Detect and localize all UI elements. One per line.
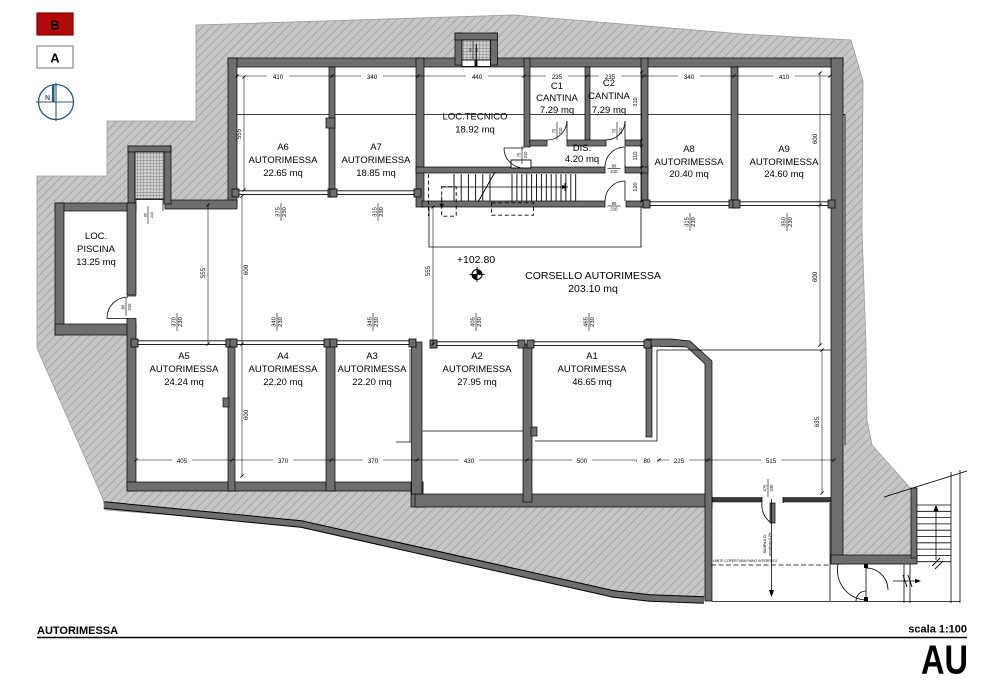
svg-text:465: 465: [583, 317, 589, 327]
svg-text:A8: A8: [683, 144, 695, 155]
svg-text:440: 440: [472, 74, 483, 81]
svg-text:+102.80: +102.80: [457, 254, 495, 266]
svg-text:22.20 mq: 22.20 mq: [263, 377, 303, 388]
svg-text:18.92 mq: 18.92 mq: [455, 125, 495, 136]
svg-text:410: 410: [273, 74, 284, 81]
svg-text:A6: A6: [277, 142, 289, 153]
svg-text:230: 230: [178, 317, 184, 327]
svg-text:310: 310: [633, 97, 639, 106]
svg-text:375: 375: [275, 207, 281, 217]
svg-text:18.85 mq: 18.85 mq: [356, 168, 396, 179]
svg-text:AUTORIMESSA: AUTORIMESSA: [249, 364, 319, 375]
svg-text:C1: C1: [551, 81, 563, 92]
svg-text:80: 80: [120, 304, 125, 309]
svg-text:46.65 mq: 46.65 mq: [572, 377, 612, 388]
svg-text:CANTINA: CANTINA: [588, 91, 630, 102]
svg-text:AUTORIMESSA: AUTORIMESSA: [37, 625, 118, 637]
svg-text:pendenza 8.2%: pendenza 8.2%: [768, 532, 772, 556]
svg-text:80: 80: [143, 213, 147, 217]
svg-text:370: 370: [278, 458, 289, 465]
svg-text:90: 90: [612, 201, 617, 206]
svg-text:210: 210: [618, 127, 623, 135]
svg-text:430: 430: [464, 458, 475, 465]
svg-text:230: 230: [477, 317, 483, 327]
svg-text:230: 230: [788, 217, 794, 227]
svg-text:600: 600: [812, 271, 819, 282]
svg-text:AUTORIMESSA: AUTORIMESSA: [338, 364, 408, 375]
svg-text:600: 600: [812, 133, 819, 144]
svg-text:4.20 mq: 4.20 mq: [565, 154, 599, 165]
svg-text:120: 120: [633, 182, 639, 191]
svg-text:24.24 mq: 24.24 mq: [164, 377, 204, 388]
svg-text:CANTINA: CANTINA: [536, 93, 578, 104]
svg-text:PISCINA: PISCINA: [77, 244, 116, 255]
svg-text:AUTORIMESSA: AUTORIMESSA: [342, 155, 412, 166]
svg-text:370: 370: [368, 458, 379, 465]
svg-text:A3: A3: [366, 351, 378, 362]
svg-text:500: 500: [577, 458, 588, 465]
svg-text:210: 210: [611, 207, 619, 212]
svg-text:24.60 mq: 24.60 mq: [764, 169, 804, 180]
svg-text:315: 315: [372, 207, 378, 217]
svg-text:7.29 mq: 7.29 mq: [540, 105, 574, 116]
svg-text:7.29 mq: 7.29 mq: [592, 105, 626, 116]
svg-text:B: B: [50, 18, 59, 33]
svg-text:75: 75: [551, 128, 556, 133]
svg-text:405: 405: [177, 458, 188, 465]
svg-text:210: 210: [127, 303, 132, 311]
svg-text:AUTORIMESSA: AUTORIMESSA: [655, 157, 725, 168]
svg-text:50: 50: [475, 48, 479, 52]
svg-text:A: A: [50, 51, 60, 66]
svg-text:75: 75: [516, 152, 521, 157]
svg-text:13.25 mq: 13.25 mq: [76, 257, 116, 268]
svg-text:555: 555: [425, 265, 432, 276]
svg-text:230: 230: [374, 317, 380, 327]
svg-text:27.95 mq: 27.95 mq: [457, 377, 497, 388]
svg-text:C2: C2: [603, 78, 615, 89]
svg-text:AU: AU: [921, 637, 968, 683]
svg-text:AUTORIMESSA: AUTORIMESSA: [150, 364, 220, 375]
svg-text:A2: A2: [471, 351, 483, 362]
svg-text:210: 210: [523, 151, 528, 159]
svg-text:635: 635: [814, 416, 821, 427]
svg-text:240: 240: [150, 212, 154, 218]
svg-text:230: 230: [379, 207, 385, 217]
svg-text:A9: A9: [778, 144, 790, 155]
svg-text:110: 110: [633, 152, 639, 161]
svg-text:315: 315: [684, 217, 690, 227]
svg-text:230: 230: [769, 484, 774, 492]
svg-text:230: 230: [278, 317, 284, 327]
svg-text:AUTORIMESSA: AUTORIMESSA: [443, 364, 513, 375]
svg-text:555: 555: [200, 267, 207, 278]
svg-text:230: 230: [691, 217, 697, 227]
svg-text:90: 90: [612, 163, 617, 168]
svg-text:600: 600: [243, 409, 250, 420]
svg-text:CORSELLO AUTORIMESSA: CORSELLO AUTORIMESSA: [525, 270, 661, 282]
svg-text:340: 340: [684, 74, 695, 81]
svg-text:A1: A1: [586, 351, 598, 362]
svg-text:LOC.: LOC.: [85, 231, 107, 242]
svg-text:AUTORIMESSA: AUTORIMESSA: [249, 155, 319, 166]
svg-text:210: 210: [611, 169, 619, 174]
svg-text:AUTORIMESSA: AUTORIMESSA: [558, 364, 628, 375]
svg-text:RAMPA 8 DI: RAMPA 8 DI: [763, 535, 767, 554]
svg-text:75: 75: [611, 128, 616, 133]
svg-text:600: 600: [243, 264, 250, 275]
svg-text:LIMITE COPERTURA PIANO INTERRA: LIMITE COPERTURA PIANO INTERRATO: [713, 559, 778, 563]
svg-text:515: 515: [766, 458, 777, 465]
svg-text:AUTORIMESSA: AUTORIMESSA: [750, 157, 820, 168]
svg-text:345: 345: [367, 317, 373, 327]
svg-text:405: 405: [470, 317, 476, 327]
svg-text:555: 555: [236, 128, 243, 139]
svg-text:230: 230: [282, 207, 288, 217]
svg-text:410: 410: [779, 74, 790, 81]
svg-text:50: 50: [468, 48, 472, 52]
svg-text:A7: A7: [370, 142, 382, 153]
svg-text:22.20 mq: 22.20 mq: [352, 377, 392, 388]
svg-text:475: 475: [762, 484, 767, 492]
svg-text:scala 1:100: scala 1:100: [908, 624, 967, 636]
svg-text:A4: A4: [277, 351, 289, 362]
svg-text:80: 80: [644, 458, 651, 465]
svg-text:340: 340: [271, 317, 277, 327]
svg-text:20.40 mq: 20.40 mq: [669, 169, 709, 180]
svg-text:350: 350: [781, 217, 787, 227]
svg-text:203.10 mq: 203.10 mq: [568, 283, 618, 295]
svg-text:210: 210: [558, 127, 563, 135]
svg-text:LOC.TECNICO: LOC.TECNICO: [443, 112, 508, 123]
svg-text:22.65 mq: 22.65 mq: [263, 168, 303, 179]
svg-text:DIS.: DIS.: [573, 143, 591, 154]
svg-text:340: 340: [367, 74, 378, 81]
svg-text:370: 370: [171, 317, 177, 327]
svg-text:225: 225: [674, 458, 685, 465]
svg-text:N: N: [45, 95, 50, 102]
svg-text:235: 235: [552, 74, 563, 81]
svg-text:A5: A5: [178, 351, 190, 362]
svg-text:230: 230: [590, 317, 596, 327]
